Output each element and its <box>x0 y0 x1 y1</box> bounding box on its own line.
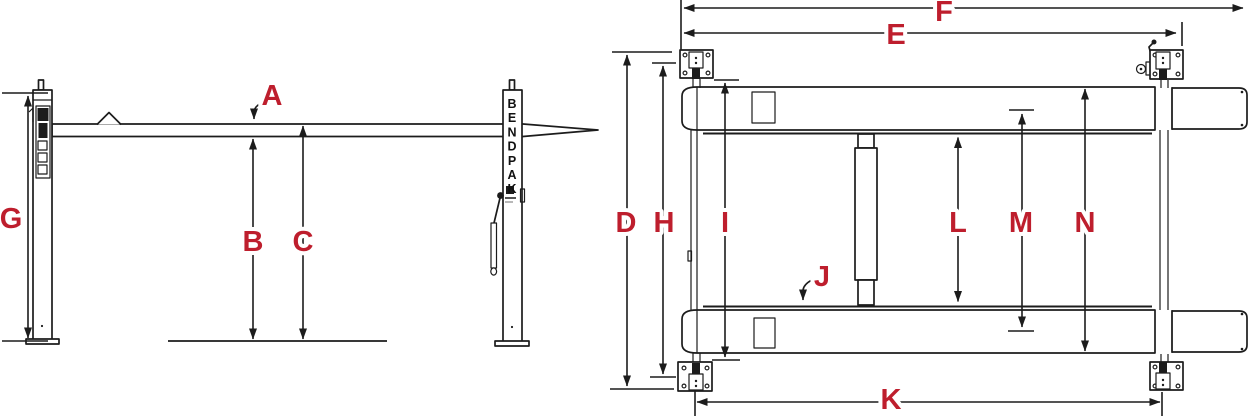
dimension-label-e: E <box>886 19 905 51</box>
runway-stop-tab <box>97 113 121 125</box>
hydraulic-cylinder <box>855 134 877 305</box>
dimension-label-j: J <box>814 261 830 293</box>
post-bottom-left <box>678 353 712 391</box>
approach-ramp-top <box>1172 88 1247 129</box>
dimension-label-m: M <box>1009 207 1033 239</box>
top-runway <box>682 87 1155 130</box>
dimension-label-d: D <box>616 207 637 239</box>
dimension-k <box>695 390 1162 416</box>
post-pin <box>39 80 44 90</box>
approach-ramp-bottom <box>1172 311 1247 352</box>
crank-handle <box>491 192 504 275</box>
post-bottom-right <box>1150 354 1183 390</box>
dimension-label-f: F <box>935 0 953 28</box>
dimension-label-n: N <box>1075 207 1096 239</box>
post-top-right <box>1137 40 1184 89</box>
dimension-label-k: K <box>881 384 902 416</box>
dimension-label-l: L <box>949 207 967 239</box>
dimension-label-b: B <box>243 226 264 258</box>
dimension-label-c: C <box>293 226 314 258</box>
post-pin <box>510 80 515 90</box>
lift-dimension-diagram: A B C G <box>0 0 1250 416</box>
dimension-j <box>803 280 812 300</box>
bendpak-brand-label: BENDPAK <box>505 97 522 195</box>
post-top-left <box>680 50 713 88</box>
dimension-label-i: I <box>721 207 729 239</box>
diagram-canvas: A B C G <box>0 0 1250 416</box>
bottom-runway <box>682 310 1155 353</box>
left-post <box>26 80 59 344</box>
dimension-f <box>681 0 1243 50</box>
plan-view: D H I E F J K L M N <box>610 0 1247 416</box>
dimension-label-h: H <box>654 207 675 239</box>
post-base-plate <box>495 341 529 346</box>
crosstubes <box>688 130 1168 310</box>
dimension-label-g: G <box>0 203 22 235</box>
dimension-e <box>684 22 1182 46</box>
dimension-label-a: A <box>262 80 283 112</box>
